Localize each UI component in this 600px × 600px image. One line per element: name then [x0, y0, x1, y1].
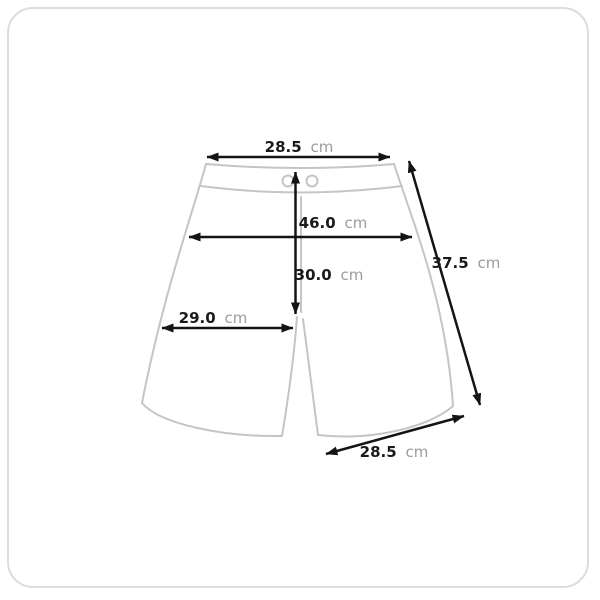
leg-opening-unit: cm: [405, 443, 428, 461]
waistband-top-edge: [206, 164, 394, 168]
left-leg-hem: [142, 403, 282, 436]
hip-width-label: 46.0 cm: [299, 214, 368, 232]
drawstring-eyelet-left: [283, 176, 294, 187]
drawstring-eyelet-right: [307, 176, 318, 187]
side-length-value: 37.5: [432, 254, 469, 272]
waistband-bottom-edge: [201, 186, 402, 193]
waist-width-label: 28.5 cm: [265, 138, 334, 156]
dimension-lines: [162, 157, 480, 454]
front-rise-value: 30.0: [295, 266, 332, 284]
side-length-label: 37.5 cm: [432, 254, 501, 272]
thigh-width-value: 29.0: [179, 309, 216, 327]
waist-width-unit: cm: [310, 138, 333, 156]
hip-width-value: 46.0: [299, 214, 336, 232]
right-inner-seam: [303, 319, 318, 435]
front-rise-unit: cm: [340, 266, 363, 284]
shorts-size-diagram: 28.5 cm 46.0 cm 30.0 cm 29.0 cm 37.5 cm …: [0, 0, 600, 600]
left-outer-seam: [142, 164, 206, 403]
side-length-arrow: [409, 161, 480, 405]
thigh-width-label: 29.0 cm: [179, 309, 248, 327]
side-length-unit: cm: [477, 254, 500, 272]
leg-opening-value: 28.5: [360, 443, 397, 461]
dimension-labels: 28.5 cm 46.0 cm 30.0 cm 29.0 cm 37.5 cm …: [179, 138, 501, 461]
right-leg-hem: [318, 406, 453, 436]
leg-opening-label: 28.5 cm: [360, 443, 429, 461]
shorts-outline: [142, 164, 453, 436]
waist-width-value: 28.5: [265, 138, 302, 156]
hip-width-unit: cm: [344, 214, 367, 232]
screenshot-canvas: 28.5 cm 46.0 cm 30.0 cm 29.0 cm 37.5 cm …: [0, 0, 600, 600]
left-inner-seam: [282, 317, 297, 436]
thigh-width-unit: cm: [224, 309, 247, 327]
front-rise-label: 30.0 cm: [295, 266, 364, 284]
